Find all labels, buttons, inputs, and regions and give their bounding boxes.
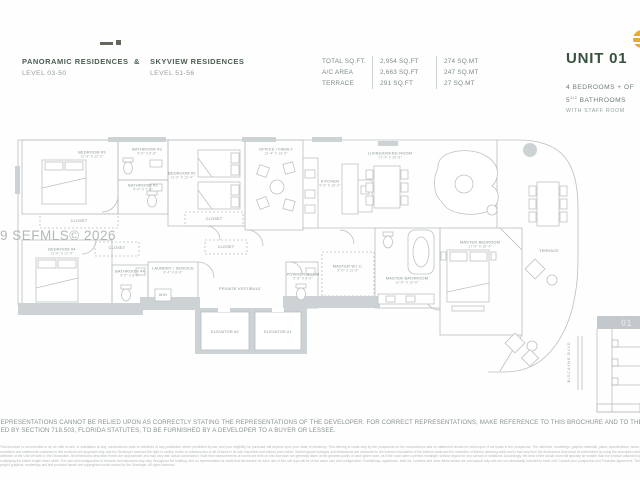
mls-watermark: 49 SEFMLS© 2026 bbox=[0, 228, 116, 243]
room-label-elevator-2: ELEVATOR #2 bbox=[211, 329, 239, 334]
bathtub-icon bbox=[408, 230, 434, 274]
room-label-closet: CLOSET bbox=[218, 244, 235, 249]
room-label-closet: CLOSET bbox=[109, 245, 126, 250]
room-label-closet: CLOSET bbox=[71, 218, 88, 223]
sofa-icon bbox=[435, 151, 499, 215]
room-label-bedroom-3: BEDROOM #311'-4″ x 12'-0″ bbox=[78, 150, 105, 159]
kitchen-counter-icon bbox=[303, 158, 372, 228]
room-label-closet: CLOSET bbox=[206, 216, 223, 221]
door-arc bbox=[340, 230, 354, 244]
room-label-living-dining: LIVING/DINING ROOM17'-4″ x 20'-6″ bbox=[368, 151, 412, 160]
room-label-master-wic: MASTER W.I.C.8'-6″ x 11'-0″ bbox=[333, 264, 363, 273]
elevator-door bbox=[218, 308, 230, 312]
terrace-column bbox=[523, 143, 537, 157]
disclaimer-line-2: RED BY SECTION 718.503, FLORIDA STATUTES… bbox=[0, 427, 336, 434]
door-arc bbox=[247, 230, 263, 246]
double-vanity-icon bbox=[378, 294, 434, 304]
master-wic-room bbox=[322, 252, 374, 296]
twin-beds-icon bbox=[198, 150, 240, 209]
room-label-terrace: TERRACE bbox=[539, 248, 559, 253]
lounge-chairs-icon bbox=[505, 259, 557, 366]
door-arc bbox=[206, 226, 220, 240]
room-label-master-bedroom: MASTER BEDROOM17'-0″ x 16'-4″ bbox=[460, 240, 500, 249]
room-label-elevator-1: ELEVATOR #1 bbox=[264, 329, 292, 334]
door-arc bbox=[102, 196, 118, 212]
street-label-biscayne-blvd: BISCAYNE BLVD bbox=[566, 342, 571, 383]
terrace-outline bbox=[488, 140, 578, 372]
room-label-bathroom-4: BATHROOM #45'-0″ x 8'-0″ bbox=[115, 269, 145, 278]
room-label-laundry-service: LAUNDRY / SERVICE6'-4″ x 8'-6″ bbox=[152, 266, 194, 275]
door-arc bbox=[198, 262, 214, 278]
bed-icon bbox=[42, 160, 86, 204]
keyplan bbox=[597, 316, 640, 412]
master-bed-icon bbox=[441, 250, 496, 311]
road-lines bbox=[578, 336, 582, 390]
dining-table-icon bbox=[366, 166, 408, 208]
room-label-bathroom-3: BATHROOM #35'-0″ x 8'-6″ bbox=[132, 147, 162, 156]
disclaimer-line-1: REPRESENTATIONS CANNOT BE RELIED UPON AS… bbox=[0, 419, 640, 426]
elevator-door bbox=[272, 308, 284, 312]
brand-logo-partial-icon bbox=[630, 30, 640, 48]
label-washer-dryer: W/D bbox=[159, 292, 167, 297]
room-label-master-bathroom: MASTER BATHROOM11'-6″ x 10'-6″ bbox=[386, 276, 428, 285]
room-label-bedroom-4: BEDROOM #411'-0″ x 12'-0″ bbox=[48, 247, 75, 256]
brochure-page: { "header": { "left": { "title1": "PANOR… bbox=[0, 0, 640, 480]
outdoor-dining-icon bbox=[529, 182, 567, 226]
room-label-office-family: OFFICE / FAMILY12'-4″ x 13'-6″ bbox=[259, 147, 293, 156]
room-label-powder-room: POWDER ROOM5'-6″ x 6'-0″ bbox=[287, 272, 320, 281]
room-label-bathroom-2: BATHROOM #25'-0″ x 7'-6″ bbox=[128, 183, 158, 192]
keyplan-unit-number: 01 bbox=[621, 318, 632, 328]
office-chairs-icon bbox=[257, 162, 296, 211]
room-label-kitchen: KITCHEN9'-6″ x 16'-0″ bbox=[319, 179, 340, 188]
room-label-bedroom-2: BEDROOM #211'-0″ x 12'-4″ bbox=[168, 171, 195, 180]
bed-icon bbox=[36, 258, 78, 302]
room-label-private-vestibule: PRIVATE VESTIBULE bbox=[219, 286, 261, 291]
fine-print-legal: This brochure is not intended to be an o… bbox=[0, 445, 640, 468]
